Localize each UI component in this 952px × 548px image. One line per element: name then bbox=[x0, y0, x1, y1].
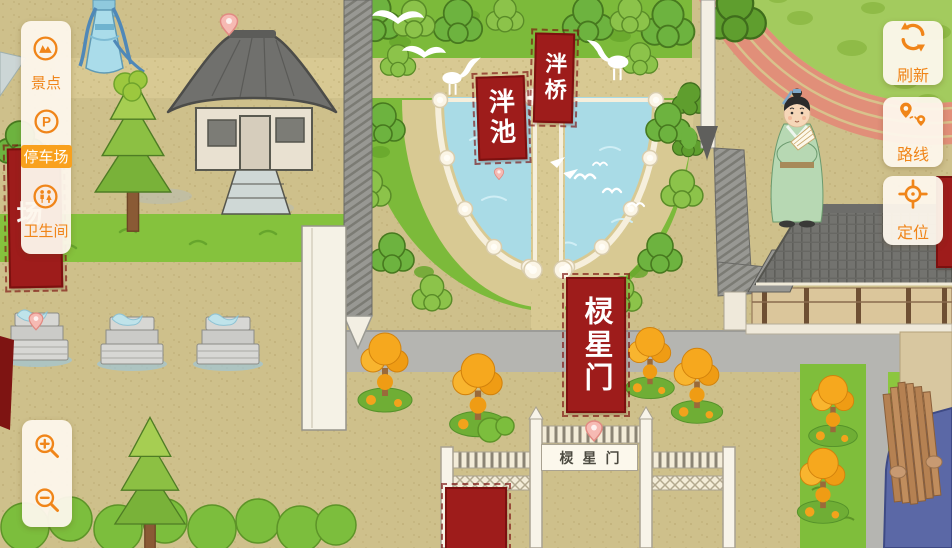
map-label-pan-bridge[interactable]: 泮桥 bbox=[533, 32, 575, 123]
sidebar-item-restroom[interactable]: 卫生间 bbox=[23, 183, 68, 241]
scenic-map-screen: 场 泮桥 泮池 棂星门 文 棂星门 景点 P 停车场 bbox=[0, 0, 952, 548]
refresh-icon bbox=[897, 21, 929, 58]
map-label-lingxing-gate[interactable]: 棂星门 bbox=[566, 277, 626, 413]
svg-text:P: P bbox=[41, 114, 50, 129]
route-icon bbox=[897, 100, 929, 137]
map-label-bottom-partial[interactable]: 文 bbox=[445, 487, 507, 548]
refresh-label: 刷新 bbox=[897, 62, 929, 86]
zoom-out-button[interactable] bbox=[32, 485, 63, 516]
sidebar-label-scenic-spots: 景点 bbox=[31, 72, 61, 93]
sidebar-panel: 景点 P 停车场 卫生间 bbox=[21, 21, 71, 254]
sidebar-label-parking: 停车场 bbox=[21, 145, 72, 168]
parking-icon: P bbox=[33, 108, 60, 140]
sidebar-item-scenic-spots[interactable]: 景点 bbox=[31, 35, 61, 93]
sidebar-label-restroom: 卫生间 bbox=[23, 220, 68, 241]
locate-icon bbox=[897, 178, 929, 215]
locate-label: 定位 bbox=[897, 219, 929, 243]
zoom-in-button[interactable] bbox=[32, 431, 63, 462]
scenic-spot-icon bbox=[32, 35, 59, 67]
gate-plaque: 棂星门 bbox=[541, 444, 638, 471]
restroom-icon bbox=[32, 183, 59, 215]
sidebar-item-parking[interactable]: P 停车场 bbox=[21, 108, 72, 168]
refresh-button[interactable]: 刷新 bbox=[883, 21, 943, 85]
locate-button[interactable]: 定位 bbox=[883, 176, 943, 245]
zoom-panel bbox=[22, 420, 72, 527]
route-label: 路线 bbox=[897, 141, 929, 165]
map-label-pan-pond[interactable]: 泮池 bbox=[476, 75, 528, 161]
route-button[interactable]: 路线 bbox=[883, 97, 943, 167]
